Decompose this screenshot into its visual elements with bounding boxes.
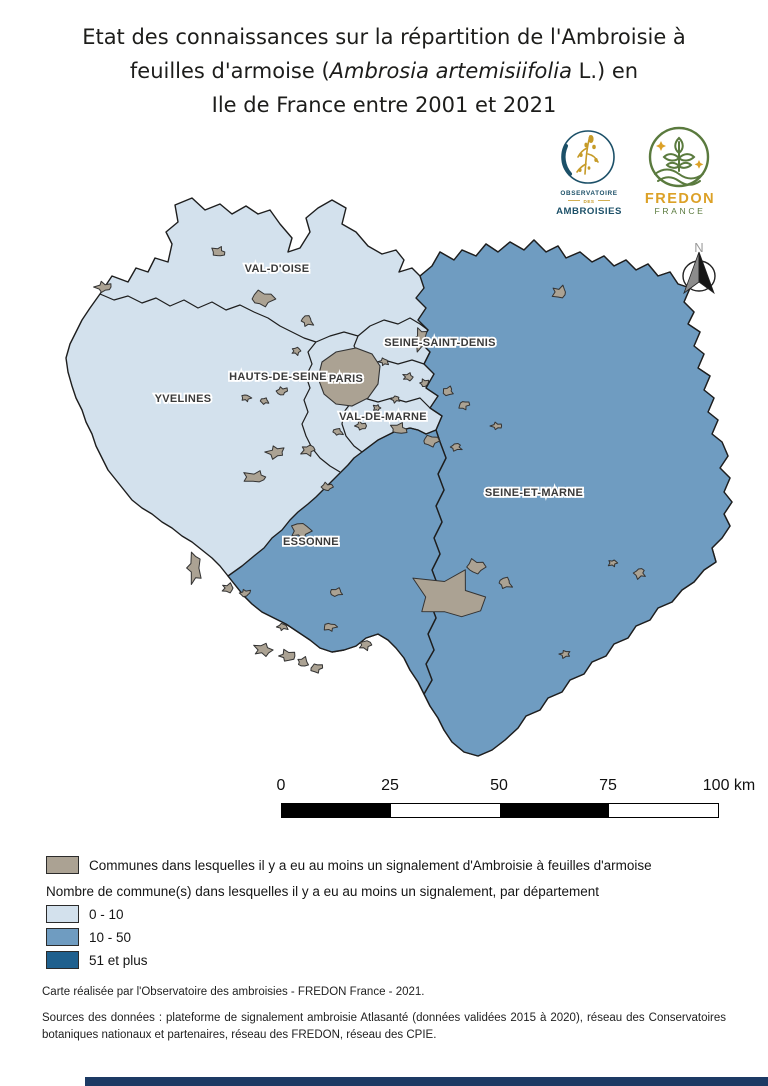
scalebar-segment — [282, 804, 391, 817]
title-line-2: feuilles d'armoise (Ambrosia artemisiifo… — [0, 54, 768, 88]
scalebar-tick: 0 — [277, 777, 286, 795]
commune-blob — [298, 657, 309, 667]
class-swatch — [46, 928, 79, 946]
commune-blob — [222, 583, 233, 593]
bottom-banner — [85, 1077, 768, 1086]
legend-class-row: 10 - 50 — [46, 928, 131, 946]
scalebar-segment — [500, 804, 609, 817]
scalebar-tick: 100 km — [703, 777, 755, 795]
north-arrow-icon: N — [683, 240, 715, 293]
scalebar-tick: 25 — [381, 777, 399, 795]
scalebar — [281, 803, 719, 818]
legend-class-row: 51 et plus — [46, 951, 148, 969]
class-swatch — [46, 951, 79, 969]
commune-blob — [254, 643, 273, 656]
map-label-yvelines: YVELINES — [155, 393, 212, 405]
map-label-hauts-de-seine: HAUTS-DE-SEINE — [229, 371, 327, 383]
commune-swatch — [46, 856, 79, 874]
latin-name: Ambrosia artemisiifolia — [330, 59, 572, 83]
map-label-seine-saint-denis: SEINE-SAINT-DENIS — [384, 337, 495, 349]
credit-line: Carte réalisée par l'Observatoire des am… — [42, 986, 424, 998]
poster: Etat des connaissances sur la répartitio… — [0, 0, 768, 1086]
legend-communes-label: Communes dans lesquelles il y a eu au mo… — [89, 858, 652, 873]
class-swatch — [46, 905, 79, 923]
ile-de-france-map: VAL-D'OISESEINE-SAINT-DENISHAUTS-DE-SEIN… — [0, 178, 768, 778]
legend-class-row: 0 - 10 — [46, 905, 124, 923]
scalebar-tick: 75 — [599, 777, 617, 795]
map-label-paris: PARIS — [329, 373, 363, 385]
legend-heading: Nombre de commune(s) dans lesquelles il … — [46, 884, 599, 899]
commune-blob — [311, 664, 323, 673]
class-label: 10 - 50 — [89, 930, 131, 945]
commune-blob — [359, 641, 371, 651]
map-label-seine-et-marne: SEINE-ET-MARNE — [485, 487, 583, 499]
commune-blob — [187, 552, 202, 584]
class-label: 51 et plus — [89, 953, 148, 968]
title-line-1: Etat des connaissances sur la répartitio… — [0, 20, 768, 54]
title-line-3: Ile de France entre 2001 et 2021 — [0, 88, 768, 122]
scalebar-segment — [391, 804, 500, 817]
legend-communes-row: Communes dans lesquelles il y a eu au mo… — [46, 856, 652, 874]
map-label-val-d-oise: VAL-D'OISE — [245, 263, 310, 275]
scalebar-segment — [609, 804, 718, 817]
scalebar-tick: 50 — [490, 777, 508, 795]
commune-blob — [279, 649, 295, 661]
sources-paragraph: Sources des données : plateforme de sign… — [42, 1010, 726, 1044]
map-label-essonne: ESSONNE — [283, 536, 339, 548]
page-title: Etat des connaissances sur la répartitio… — [0, 20, 768, 122]
map-label-val-de-marne: VAL-DE-MARNE — [339, 411, 427, 423]
class-label: 0 - 10 — [89, 907, 124, 922]
